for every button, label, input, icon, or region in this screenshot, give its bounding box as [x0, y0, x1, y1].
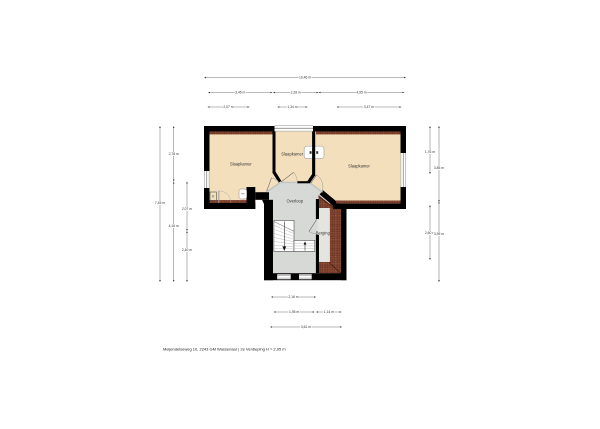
svg-text:4,55 m: 4,55 m [356, 91, 366, 95]
svg-text:Berging: Berging [316, 230, 331, 235]
svg-text:Slaapkamer: Slaapkamer [230, 161, 252, 166]
svg-text:7,45 m: 7,45 m [155, 201, 165, 205]
svg-text:3,47 m: 3,47 m [364, 105, 374, 109]
svg-text:2,07 m: 2,07 m [182, 207, 192, 211]
svg-text:Meijendelseweg 10, 2243 GM Was: Meijendelseweg 10, 2243 GM Wassenaar | 2… [163, 347, 286, 352]
svg-text:2,07 m: 2,07 m [223, 105, 233, 109]
svg-text:10,46 m: 10,46 m [299, 76, 311, 80]
svg-text:3,95 m: 3,95 m [434, 232, 444, 236]
svg-text:3,85 m: 3,85 m [434, 166, 444, 170]
svg-text:1,14 m: 1,14 m [324, 310, 334, 314]
svg-text:1,34 m: 1,34 m [287, 105, 297, 109]
svg-text:Overloop: Overloop [286, 198, 303, 203]
svg-text:Slaapkamer: Slaapkamer [348, 164, 370, 169]
svg-text:3,45 m: 3,45 m [235, 91, 245, 95]
svg-text:2,16 m: 2,16 m [288, 295, 298, 299]
svg-text:4,16 m: 4,16 m [169, 224, 179, 228]
svg-text:3,61 m: 3,61 m [301, 325, 311, 329]
svg-text:1,95 m: 1,95 m [289, 310, 299, 314]
svg-text:1,76 m: 1,76 m [425, 150, 435, 154]
svg-text:2,40 m: 2,40 m [182, 248, 192, 252]
svg-text:2,78 m: 2,78 m [169, 152, 179, 156]
svg-text:2,28 m: 2,28 m [291, 91, 301, 95]
svg-text:Slaapkamer: Slaapkamer [281, 151, 303, 156]
